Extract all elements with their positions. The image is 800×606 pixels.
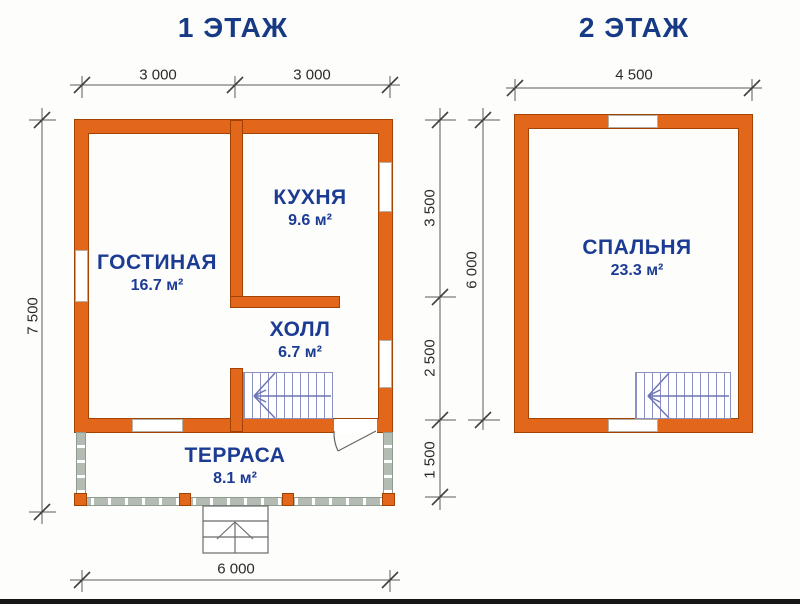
room-bedroom-name: СПАЛЬНЯ bbox=[582, 236, 691, 260]
room-kitchen-area: 9.6 м² bbox=[273, 212, 346, 230]
room-kitchen: КУХНЯ 9.6 м² bbox=[273, 186, 346, 230]
dim-depth-kitchen: 3 500 bbox=[422, 189, 439, 227]
dim-top-left: 3 000 bbox=[139, 67, 177, 84]
floor1-partition-vertical-lower bbox=[230, 368, 243, 432]
entrance-steps bbox=[203, 506, 268, 553]
dim-top-right: 3 000 bbox=[293, 67, 331, 84]
floor1-window-terrace bbox=[132, 419, 183, 432]
terrace-post bbox=[282, 493, 294, 506]
dim-floor2-depth: 6 000 bbox=[464, 251, 481, 289]
terrace-post bbox=[382, 493, 395, 506]
room-terrace-area: 8.1 м² bbox=[185, 470, 286, 488]
floor-plan-canvas: 1 ЭТАЖ 2 ЭТАЖ bbox=[0, 0, 800, 606]
room-living: ГОСТИНАЯ 16.7 м² bbox=[97, 251, 217, 295]
floor1-partition-horizontal bbox=[230, 296, 340, 308]
terrace-railing-bottom bbox=[76, 497, 393, 506]
floor1-door-opening bbox=[334, 419, 377, 434]
room-hall-name: ХОЛЛ bbox=[270, 318, 331, 342]
room-living-area: 16.7 м² bbox=[97, 277, 217, 295]
floor2-stairs bbox=[635, 372, 731, 419]
room-terrace-name: ТЕРРАСА bbox=[185, 444, 286, 468]
room-terrace: ТЕРРАСА 8.1 м² bbox=[185, 444, 286, 488]
terrace-post bbox=[74, 493, 87, 506]
floor1-stairs bbox=[243, 372, 333, 419]
floor1-window-living bbox=[75, 250, 88, 302]
room-bedroom: СПАЛЬНЯ 23.3 м² bbox=[582, 236, 691, 280]
dim-depth-hall: 2 500 bbox=[422, 339, 439, 377]
floor2-window-top bbox=[608, 115, 658, 128]
floor2-title: 2 ЭТАЖ bbox=[579, 12, 689, 44]
dim-total-height: 7 500 bbox=[25, 297, 42, 335]
room-hall-area: 6.7 м² bbox=[270, 344, 331, 362]
dim-total-width: 6 000 bbox=[217, 561, 255, 578]
dim-floor2-width: 4 500 bbox=[615, 67, 653, 84]
room-living-name: ГОСТИНАЯ bbox=[97, 251, 217, 275]
bottom-border-bar bbox=[0, 599, 800, 604]
room-bedroom-area: 23.3 м² bbox=[582, 262, 691, 280]
dim-depth-terrace: 1 500 bbox=[422, 441, 439, 479]
door-swing bbox=[334, 431, 376, 451]
floor1-window-hall bbox=[379, 340, 392, 388]
floor1-title: 1 ЭТАЖ bbox=[178, 12, 288, 44]
floor1-partition-vertical-upper bbox=[230, 120, 243, 300]
floor2-window-bottom bbox=[608, 419, 658, 432]
room-hall: ХОЛЛ 6.7 м² bbox=[270, 318, 331, 362]
floor1-window-kitchen bbox=[379, 162, 392, 212]
terrace-post bbox=[179, 493, 191, 506]
room-kitchen-name: КУХНЯ bbox=[273, 186, 346, 210]
